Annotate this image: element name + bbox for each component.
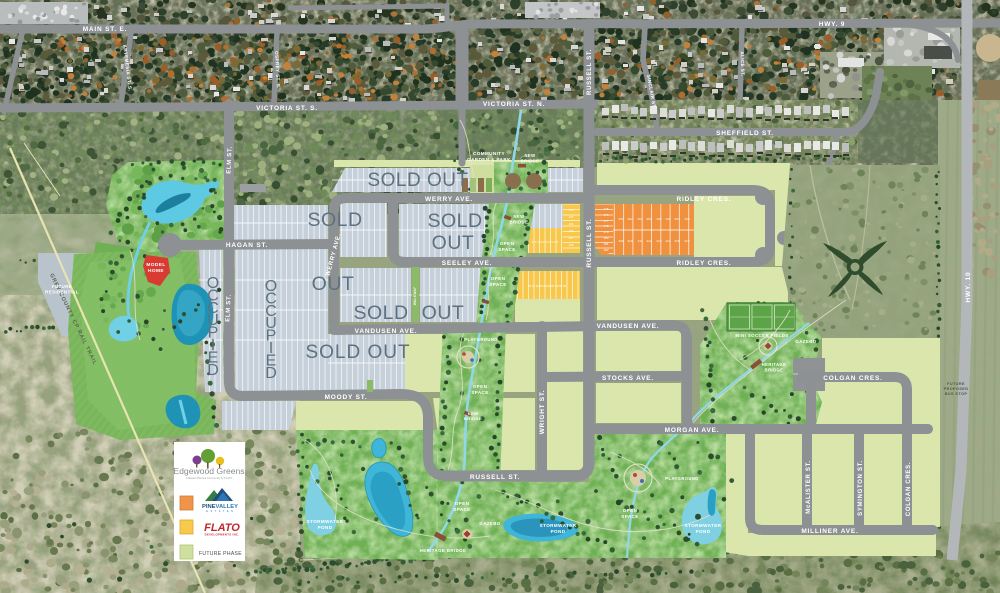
svg-text:214: 214: [665, 239, 670, 243]
svg-text:176: 176: [603, 213, 608, 217]
svg-text:210: 210: [627, 239, 632, 243]
svg-text:174 173 172 171 170: 174 173 172 171 170: [532, 240, 559, 244]
svg-text:212: 212: [646, 239, 651, 243]
svg-text:181: 181: [603, 242, 608, 246]
svg-text:206: 206: [665, 217, 670, 221]
svg-text:209: 209: [618, 239, 623, 243]
svg-text:202: 202: [627, 217, 632, 221]
svg-text:177: 177: [603, 219, 608, 223]
svg-text:168: 168: [569, 243, 574, 247]
svg-text:180: 180: [603, 236, 608, 240]
svg-text:211: 211: [638, 239, 643, 243]
svg-text:182: 182: [603, 248, 608, 252]
svg-text:216: 216: [684, 239, 689, 243]
svg-text:215: 215: [674, 239, 679, 243]
svg-text:93 92 91 90 89 88 87 86 85 84: 93 92 91 90 89 88 87 86 85 84: [528, 284, 567, 288]
svg-text:208: 208: [684, 217, 689, 221]
svg-text:175: 175: [603, 207, 608, 211]
svg-text:163: 163: [569, 208, 574, 212]
svg-text:179: 179: [603, 230, 608, 234]
svg-text:203: 203: [637, 217, 642, 221]
svg-text:205: 205: [656, 217, 661, 221]
svg-text:167: 167: [569, 236, 574, 240]
svg-text:204: 204: [646, 217, 651, 221]
svg-text:201: 201: [618, 217, 623, 221]
svg-text:213: 213: [656, 239, 661, 243]
svg-text:166: 166: [569, 229, 574, 233]
svg-text:207: 207: [674, 217, 679, 221]
svg-text:165: 165: [569, 222, 574, 226]
svg-text:164: 164: [569, 215, 574, 219]
svg-text:178: 178: [603, 224, 608, 228]
